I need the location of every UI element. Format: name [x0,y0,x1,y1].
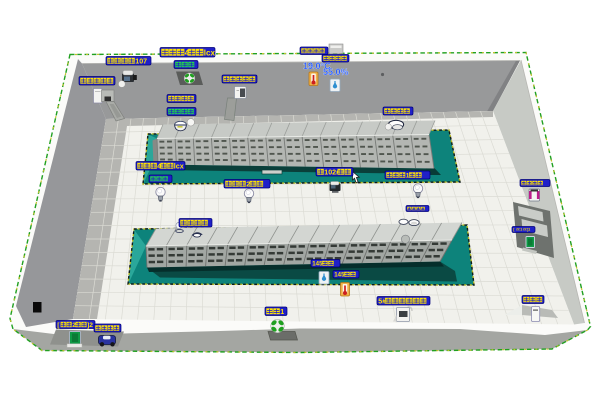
svg-text:1: 1 [280,308,284,316]
svg-text:1: 1 [520,228,522,232]
svg-text:lcx: lcx [204,48,216,57]
svg-text:145: 145 [334,272,345,279]
svg-text:]2: ]2 [87,322,93,329]
svg-text:145: 145 [312,261,323,268]
svg-text:lcx: lcx [174,162,184,170]
svg-text:]1: ]1 [527,228,530,232]
svg-text:55.0%: 55.0% [323,67,349,77]
svg-text:107: 107 [135,57,147,65]
